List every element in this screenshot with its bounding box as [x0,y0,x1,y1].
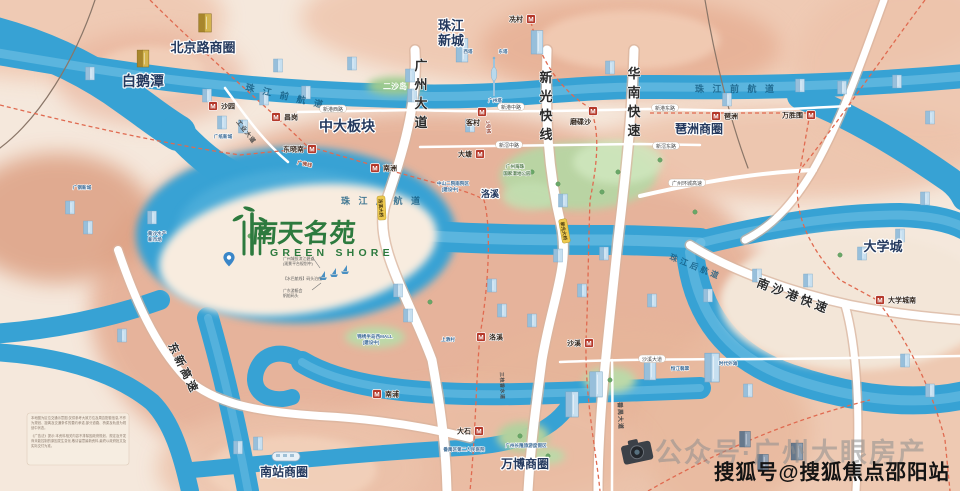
building-front [711,353,719,382]
building-side [84,221,88,234]
building-side [921,192,925,205]
building-side [406,69,410,82]
building-front [88,221,93,234]
building-icon [838,81,847,94]
building-icon [218,116,227,129]
road-label-char: 新 [539,70,552,85]
building-side [394,284,398,297]
metro-m-glyph: M [477,151,482,158]
district-label: 中大板块 [319,118,376,134]
tree-icon [616,170,620,174]
metro-station: M沙园 [209,102,236,111]
district-label: 洛溪 [481,188,500,199]
building-icon [406,69,415,82]
building-front [905,354,910,367]
metro-station-label: 冼村 [509,15,523,24]
road-plate: 沙溪大道 [639,355,666,363]
train-icon [272,452,300,461]
metro-m-glyph: M [210,103,215,110]
building-side [218,116,222,129]
building-icon [926,384,935,397]
tree-icon [658,158,662,162]
metro-station: M沙溪 [567,339,594,348]
metro-station: M东晓南 [283,145,317,154]
building-side [858,247,862,260]
poi-label: 广州长隆旅游度假区 [505,442,547,449]
district-label: 珠江 [438,18,464,33]
building-side [118,329,122,342]
building-side [86,67,90,80]
metro-station-label: 琶洲 [724,112,738,121]
building-front [204,14,211,32]
building-front [930,384,935,397]
poi-label: 黄沙水产 [148,230,167,237]
building-side [590,372,596,397]
building-front [604,247,609,260]
road-label-char: 道 [414,115,427,130]
building-icon [118,329,127,342]
building-front [842,81,847,94]
building-side [559,194,563,207]
building-icon [566,392,579,417]
metro-station-label: 沙溪 [567,339,582,348]
building-icon [498,304,507,317]
building-side [554,249,558,262]
building-front [238,441,243,454]
building-side [600,247,604,260]
tree-icon [518,434,522,438]
building-side [648,294,652,307]
building-side [926,384,930,397]
building-front [610,61,615,74]
building-side [498,304,502,317]
metro-station: M冼村 [509,15,536,24]
building-front [532,314,537,327]
building-icon [488,279,497,292]
building-side [723,93,727,106]
building-side [838,81,842,94]
building-side [606,61,610,74]
metro-m-glyph: M [808,112,813,119]
building-side [234,441,238,454]
building-icon [404,309,413,322]
road-plate-label: 沙溪大道 [642,356,662,363]
building-side [254,437,258,450]
disclaimer-p2: 《广告法》提示:本资料相关内容不排除因政府规划、规定及开发商未能控制的原因发生变… [31,434,126,449]
building-icon [66,201,75,214]
building-front [352,57,357,70]
poi-label: 广钢新城 [73,184,92,191]
building-front [258,437,263,450]
building-front [563,194,568,207]
map-canvas: 南天名苑 GREEN SHORE 珠 江 前 航 道珠 江 前 航 道珠 江 后… [0,0,960,491]
building-icon [528,314,537,327]
district-label: 大学城 [863,239,902,254]
building-front [492,279,497,292]
building-icon [234,441,243,454]
building-icon [554,249,563,262]
metro-m-glyph: M [476,428,481,435]
project-note: 【水巴航线】码头泊位 [283,276,322,281]
metro-line-label: 3号线 [484,121,492,134]
road-label-char: 快 [539,108,553,123]
metro-station-label: 南洲 [383,164,397,173]
building-side [566,392,572,417]
building-icon [893,75,902,88]
road-plate-label: 新港中路 [501,104,521,111]
building-front [708,289,713,302]
metro-m-glyph: M [479,109,484,116]
landmark-building-icon [199,14,212,32]
metro-m-glyph: M [877,297,882,304]
building-side [744,384,748,397]
building-side [901,354,905,367]
metro-station: M洛溪 [477,333,504,342]
road-label-char: 广 [414,58,427,73]
metro-m-glyph: M [478,334,483,341]
road-label-char: 快 [627,104,641,119]
metro-m-glyph: M [372,165,377,172]
building-side [528,314,532,327]
building-front [595,372,602,397]
building-front [571,392,578,417]
building-front [398,284,403,297]
building-side [348,57,352,70]
district-label: 南站商圈 [260,464,308,479]
building-icon [148,211,157,224]
building-side [274,59,278,72]
district-label: 万博商圈 [500,456,549,471]
road-plate-label: 新滘东路 [656,143,676,150]
building-front [142,50,149,67]
metro-station-label: 磨碟沙 [570,117,591,126]
building-side [704,289,708,302]
building-side [578,284,582,297]
road-label-char: 华 [627,66,640,81]
building-front [70,201,75,214]
road-plate-label: 新滘中路 [499,142,519,149]
project-note: (观景平台规划中) [283,261,314,266]
building-icon [921,192,930,205]
building-icon [274,59,283,72]
tree-icon [693,210,697,214]
disclaimer-p1: 本地图为区位交通示意图,仅供参考大致方位及周边配套信息,不作为规划、距离及交通条… [31,416,126,431]
building-icon [559,194,568,207]
metro-station-label: 万胜围 [781,111,803,120]
road-plate: 新港中路 [498,103,525,111]
metro-station-label: 大学城南 [888,296,916,305]
building-icon [84,221,93,234]
building-side [804,274,808,287]
building-icon [796,79,805,92]
building-front [207,89,212,102]
building-side [531,31,536,54]
poi-label: 国家湿地公园 [503,170,531,177]
building-icon [648,294,657,307]
tree-icon [838,253,842,257]
building-icon [254,437,263,450]
road-plate: 新港东路 [652,104,679,112]
poi-label: 番禺区第二人民医院 [442,446,485,453]
building-front [90,67,95,80]
building-icon [578,284,587,297]
road-label-char: 州 [413,77,427,92]
building-front [558,249,563,262]
building-front [152,211,157,224]
building-icon [704,289,713,302]
building-side [705,353,711,382]
road-label-char: 南 [627,85,640,100]
project-name: 南天名苑 [251,218,357,248]
building-front [536,31,543,54]
metro-station-label: 南浦 [385,390,399,399]
project-note: 帆船码头 [283,293,299,298]
road-label-char: 大 [414,96,427,111]
building-icon [203,89,212,102]
poi-label: 时代外滩 [719,360,738,367]
tree-icon [608,378,612,382]
building-front [408,309,413,322]
building-front [748,384,753,397]
bridge-plate: 洛溪大桥 [377,196,387,220]
building-side [203,89,207,102]
metro-m-glyph: M [586,340,591,347]
landmark-building-icon [137,50,149,67]
road-plate-label: 新港东路 [655,105,675,112]
metro-station: M大塘 [458,150,485,159]
metro-station: M万胜围 [781,111,816,120]
building-side [408,89,412,102]
building-front [925,192,930,205]
district-label: 北京路商圈 [170,40,235,55]
building-side [796,79,800,92]
location-map: 南天名苑 GREEN SHORE 珠 江 前 航 道珠 江 前 航 道珠 江 后… [0,0,960,491]
building-icon [804,274,813,287]
metro-m-glyph: M [309,146,314,153]
metro-station: M南浦 [373,390,400,399]
poi-label: (建设中) [442,186,459,193]
building-front [652,294,657,307]
building-icon [600,247,609,260]
poi-label: 恒江翡翠 [671,365,690,372]
poi-label: 中山二院南院区 [437,180,470,187]
district-label: 琶洲商圈 [675,121,723,136]
poi-label: (建设中) [363,339,380,346]
building-icon [531,31,543,54]
road-plate-label: 新港西路 [323,106,343,113]
poi-label: 上漖村 [441,336,455,343]
district-label: 白鹅潭 [122,73,164,89]
building-icon [606,61,615,74]
building-side [66,201,70,214]
metro-station-label: 大塘 [458,150,472,159]
district-label: 新城 [438,33,464,48]
road-plate: 广州环城高速 [668,179,705,187]
building-side [148,211,152,224]
metro-m-glyph: M [528,16,533,23]
building-icon [348,57,357,70]
metro-station-label: 洛溪 [489,333,504,342]
road-plate: 新滘中路 [496,141,523,149]
metro-station-label: 东晓南 [283,145,304,154]
poi-label: 新市场 [148,236,162,243]
tree-icon [600,190,604,194]
tree-icon [428,300,432,304]
poi-label: 东塔 [498,48,508,55]
building-front [808,274,813,287]
river-label: 珠 江 前 航 道 [695,83,777,94]
metro-station: M琶洲 [712,112,739,121]
disclaimer-box: 本地图为区位交通示意图,仅供参考大致方位及周边配套信息,不作为规划、距离及交通条… [27,413,129,465]
metro-station: M大学城南 [876,296,917,305]
road-plate-label: 广州环城高速 [672,180,702,187]
district-label: 二沙岛 [383,81,407,91]
building-side [753,269,757,282]
building-icon [705,353,719,382]
metro-m-glyph: M [273,114,278,121]
road-label-char: 速 [627,123,640,138]
road-plate: 新滘东路 [653,142,680,150]
building-icon [901,354,910,367]
tree-icon [556,182,560,186]
building-front [502,304,507,317]
road-label-char: 线 [539,127,552,142]
metro-m-glyph: M [713,113,718,120]
road-plate: 新港西路 [320,105,347,113]
road-label-char: 光 [538,89,552,104]
building-side [488,279,492,292]
metro-station-label: 客村 [465,118,480,127]
poi-label: 广纸新城 [214,133,233,140]
building-icon [723,93,732,106]
building-front [800,79,805,92]
metro-station: M昌岗 [272,113,299,122]
building-icon [926,111,935,124]
poi-label: 广州塔 [488,97,502,104]
building-side [404,309,408,322]
building-side [893,75,897,88]
road-label: 三枝香水道 [498,372,506,400]
building-side [137,50,142,67]
building-side [199,14,205,32]
metro-m-glyph: M [590,108,595,115]
building-front [222,116,227,129]
poi-label: 西塔 [463,48,473,55]
building-front [582,284,587,297]
metro-station-label: 沙园 [221,102,235,111]
metro-station-label: 大石 [457,427,471,436]
poi-label: 广州海珠 [506,163,525,170]
poi-label: 锦绣半岛西MALL [357,333,393,340]
building-front [122,329,127,342]
building-front [930,111,935,124]
building-side [926,111,930,124]
building-icon [590,372,603,397]
metro-m-glyph: M [374,391,379,398]
metro-station: M大石 [457,427,484,436]
building-icon [394,284,403,297]
building-front [727,93,732,106]
metro-station: M南洲 [371,164,398,173]
metro-station-label: 昌岗 [284,113,298,122]
building-front [278,59,283,72]
building-icon [744,384,753,397]
sohu-watermark: 搜狐号@搜狐焦点邵阳站 [714,460,950,484]
building-icon [86,67,95,80]
building-front [897,75,902,88]
